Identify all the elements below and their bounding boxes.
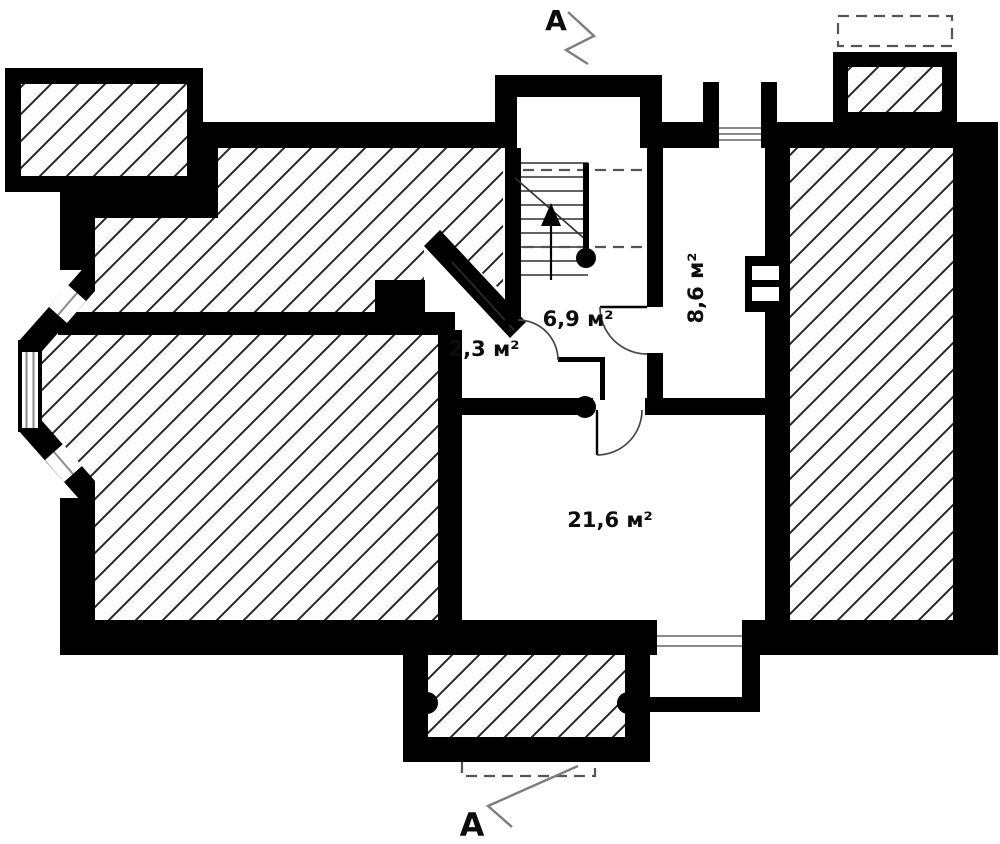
wall-stair-hall-left bbox=[505, 148, 521, 325]
hatch-top-right-box bbox=[848, 67, 942, 114]
wall-right-outer bbox=[953, 122, 998, 655]
wall-divider-horizontal bbox=[58, 312, 455, 335]
wall-hall-86-upper bbox=[647, 148, 663, 307]
flue-niche bbox=[745, 256, 790, 312]
wall-left-lower bbox=[60, 498, 95, 652]
flue-slot-2 bbox=[752, 287, 779, 301]
hatch-top-left-box bbox=[21, 84, 187, 176]
wall-hall-step-horizontal bbox=[558, 357, 604, 362]
wall-left-upper bbox=[60, 192, 95, 270]
wall-right-room-left bbox=[765, 122, 790, 655]
wall-bottom-well-bottom bbox=[632, 697, 760, 712]
floor-plan-drawing: A A 2,3 м² 6,9 м² 8,6 м² 21,6 м² bbox=[0, 0, 1000, 839]
column-dot-stoop-left bbox=[416, 692, 438, 714]
flue-slot-1 bbox=[752, 266, 779, 280]
window-bottom-wall bbox=[657, 622, 742, 655]
floor-plan-page: A A 2,3 м² 6,9 м² 8,6 м² 21,6 м² bbox=[0, 0, 1000, 839]
wall-pilaster bbox=[375, 280, 425, 312]
room-area-label-216: 21,6 м² bbox=[567, 508, 653, 532]
stair-start-dot bbox=[576, 248, 596, 268]
stair-guide-line bbox=[583, 163, 589, 258]
hatch-right-room bbox=[790, 148, 953, 622]
wall-hall-step-vertical bbox=[600, 357, 605, 400]
room-area-label-stair-hall: 6,9 м² bbox=[543, 307, 614, 331]
wall-top-left-segment bbox=[197, 122, 503, 148]
window-bay-front bbox=[22, 352, 38, 428]
room-area-label-corridor: 2,3 м² bbox=[449, 337, 520, 361]
section-label-bottom: A bbox=[460, 806, 485, 839]
column-dot-216-door bbox=[574, 396, 596, 418]
hatch-entrance-stoop bbox=[428, 648, 625, 737]
section-label-top: A bbox=[545, 4, 567, 37]
wall-top-mid-segment bbox=[662, 122, 703, 148]
wall-window-well-left bbox=[703, 82, 719, 148]
room-area-label-86: 8,6 м² bbox=[684, 253, 708, 324]
wall-216-top-left bbox=[438, 398, 593, 415]
wall-vertical-center bbox=[438, 330, 462, 655]
